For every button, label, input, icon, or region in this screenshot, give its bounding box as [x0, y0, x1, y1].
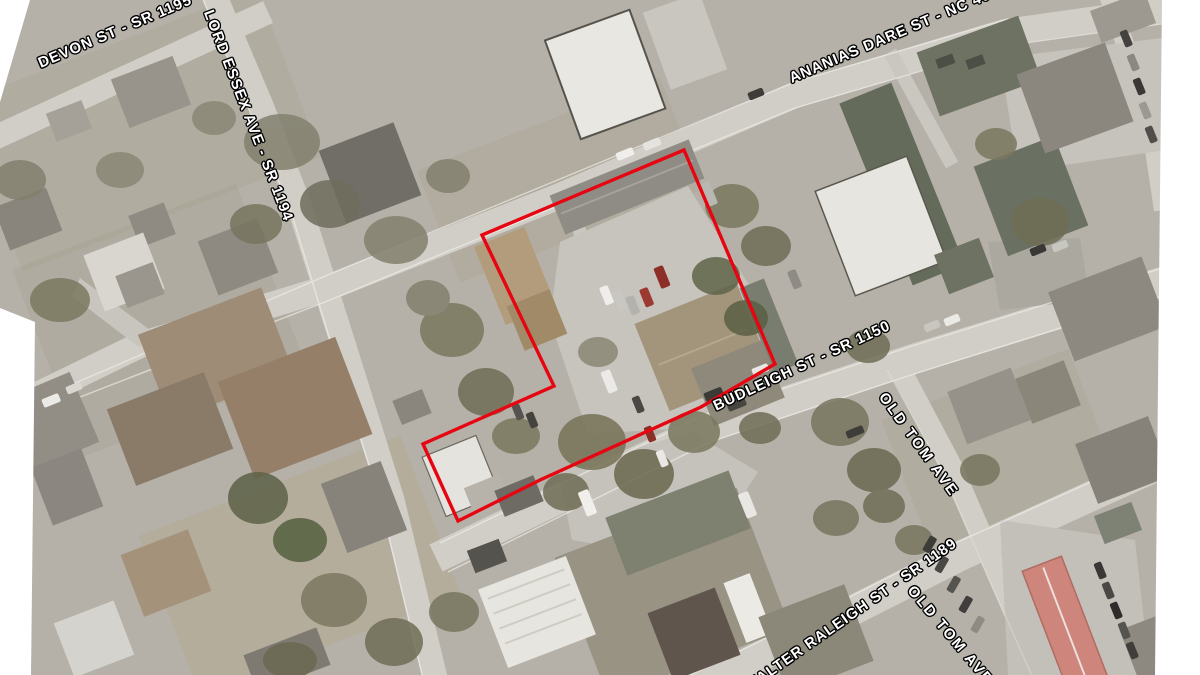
tree — [426, 159, 470, 193]
tree — [863, 489, 905, 523]
tree — [739, 412, 781, 444]
photo-margin — [0, 308, 35, 675]
tree — [558, 414, 626, 470]
tree — [365, 618, 423, 666]
tree — [301, 573, 367, 627]
tree — [813, 500, 859, 536]
tree — [406, 280, 450, 316]
tree — [30, 278, 90, 322]
tree — [300, 180, 360, 228]
tree — [975, 128, 1017, 160]
aerial-map: DEVON ST - SR 1195 LORD ESSEX AVE - SR 1… — [0, 0, 1200, 675]
tree — [429, 592, 479, 632]
photo-margin — [1155, 0, 1200, 675]
tree — [847, 448, 901, 492]
tree — [273, 518, 327, 562]
tree — [1011, 198, 1069, 246]
tree — [228, 472, 288, 524]
tree — [811, 398, 869, 446]
aerial-photo — [0, 0, 1200, 675]
tree — [96, 152, 144, 188]
tree — [192, 101, 236, 135]
tree — [960, 454, 1000, 486]
tree — [578, 337, 618, 367]
tree — [741, 226, 791, 266]
tree — [364, 216, 428, 264]
